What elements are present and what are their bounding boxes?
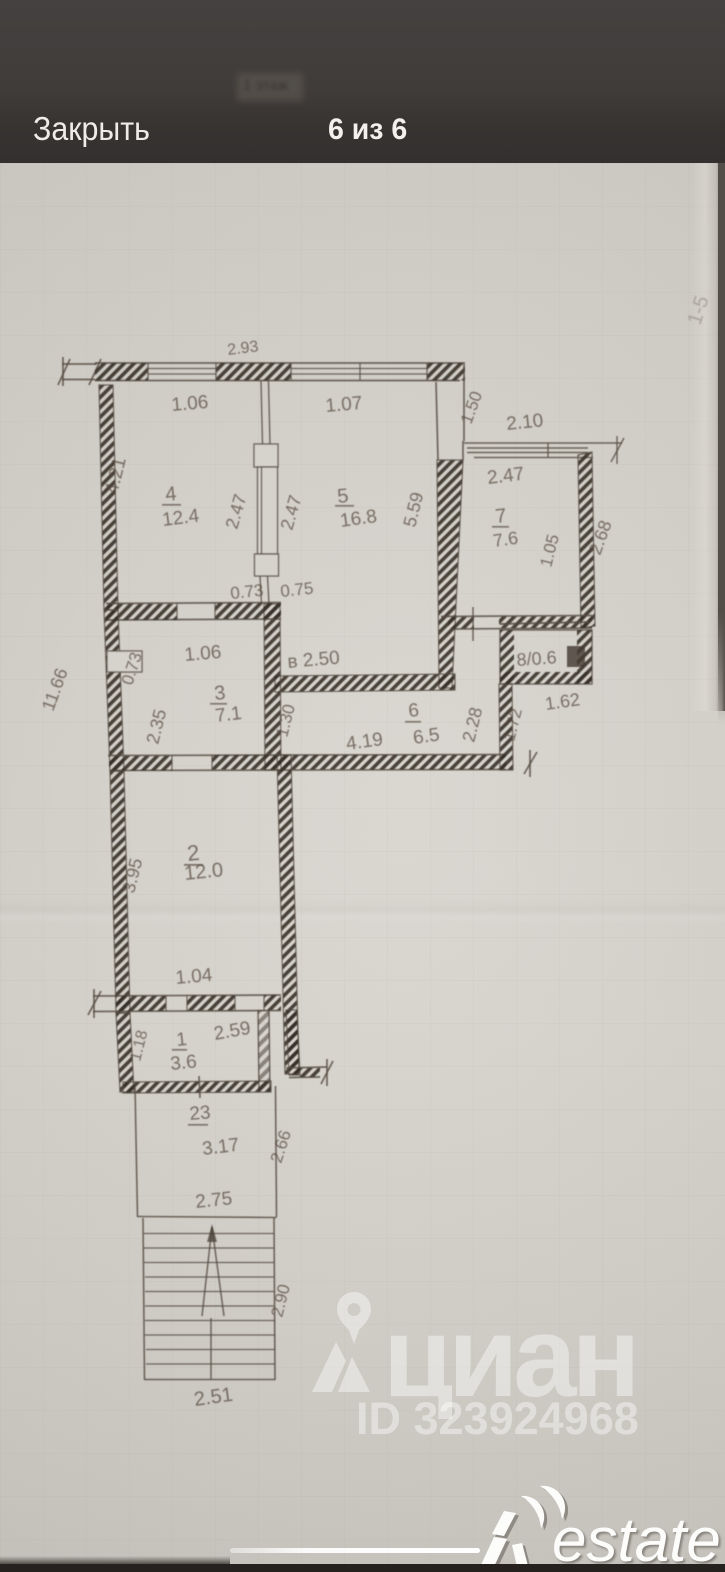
svg-text:2.93: 2.93 — [226, 338, 259, 359]
svg-text:7.1: 7.1 — [214, 703, 243, 727]
svg-text:16.8: 16.8 — [339, 506, 379, 532]
svg-text:1.07: 1.07 — [325, 393, 364, 417]
svg-text:5.59: 5.59 — [399, 490, 427, 529]
svg-text:1.06: 1.06 — [184, 642, 223, 666]
svg-text:2.90: 2.90 — [267, 1282, 293, 1319]
svg-text:5: 5 — [336, 485, 349, 508]
svg-text:11.66: 11.66 — [38, 665, 72, 713]
svg-text:3: 3 — [213, 682, 226, 705]
svg-text:23: 23 — [189, 1102, 212, 1125]
svg-text:2.51: 2.51 — [193, 1384, 235, 1411]
svg-text:2.59: 2.59 — [212, 1018, 252, 1045]
svg-text:в 2.50: в 2.50 — [287, 647, 341, 672]
svg-text:3.6: 3.6 — [169, 1051, 197, 1075]
svg-text:12.4: 12.4 — [161, 506, 201, 531]
svg-text:0.73: 0.73 — [229, 581, 264, 603]
svg-text:2.28: 2.28 — [458, 705, 486, 744]
svg-text:1.04: 1.04 — [175, 965, 214, 989]
svg-text:1.50: 1.50 — [457, 389, 486, 427]
svg-text:2.66: 2.66 — [267, 1128, 295, 1165]
svg-text:2.47: 2.47 — [277, 493, 306, 532]
svg-text:4.19: 4.19 — [345, 729, 385, 755]
svg-text:2.35: 2.35 — [142, 707, 170, 746]
svg-text:1: 1 — [175, 1029, 188, 1051]
svg-text:4: 4 — [164, 483, 177, 506]
svg-text:0.75: 0.75 — [279, 579, 314, 601]
svg-text:2.75: 2.75 — [194, 1188, 233, 1213]
svg-text:6: 6 — [407, 700, 420, 722]
svg-text:7: 7 — [494, 505, 507, 528]
svg-text:8/0.6: 8/0.6 — [516, 647, 557, 670]
svg-text:1-5: 1-5 — [684, 293, 714, 327]
svg-text:1.06: 1.06 — [171, 392, 210, 416]
svg-text:12.0: 12.0 — [183, 859, 224, 885]
svg-text:2.47: 2.47 — [222, 492, 251, 531]
svg-text:7.6: 7.6 — [492, 528, 520, 551]
svg-text:2.47: 2.47 — [486, 464, 525, 489]
svg-text:1.62: 1.62 — [544, 689, 581, 714]
svg-text:2.10: 2.10 — [505, 410, 544, 435]
svg-text:3.17: 3.17 — [201, 1135, 240, 1160]
svg-text:1.05: 1.05 — [536, 532, 562, 569]
svg-text:6.5: 6.5 — [412, 724, 441, 748]
